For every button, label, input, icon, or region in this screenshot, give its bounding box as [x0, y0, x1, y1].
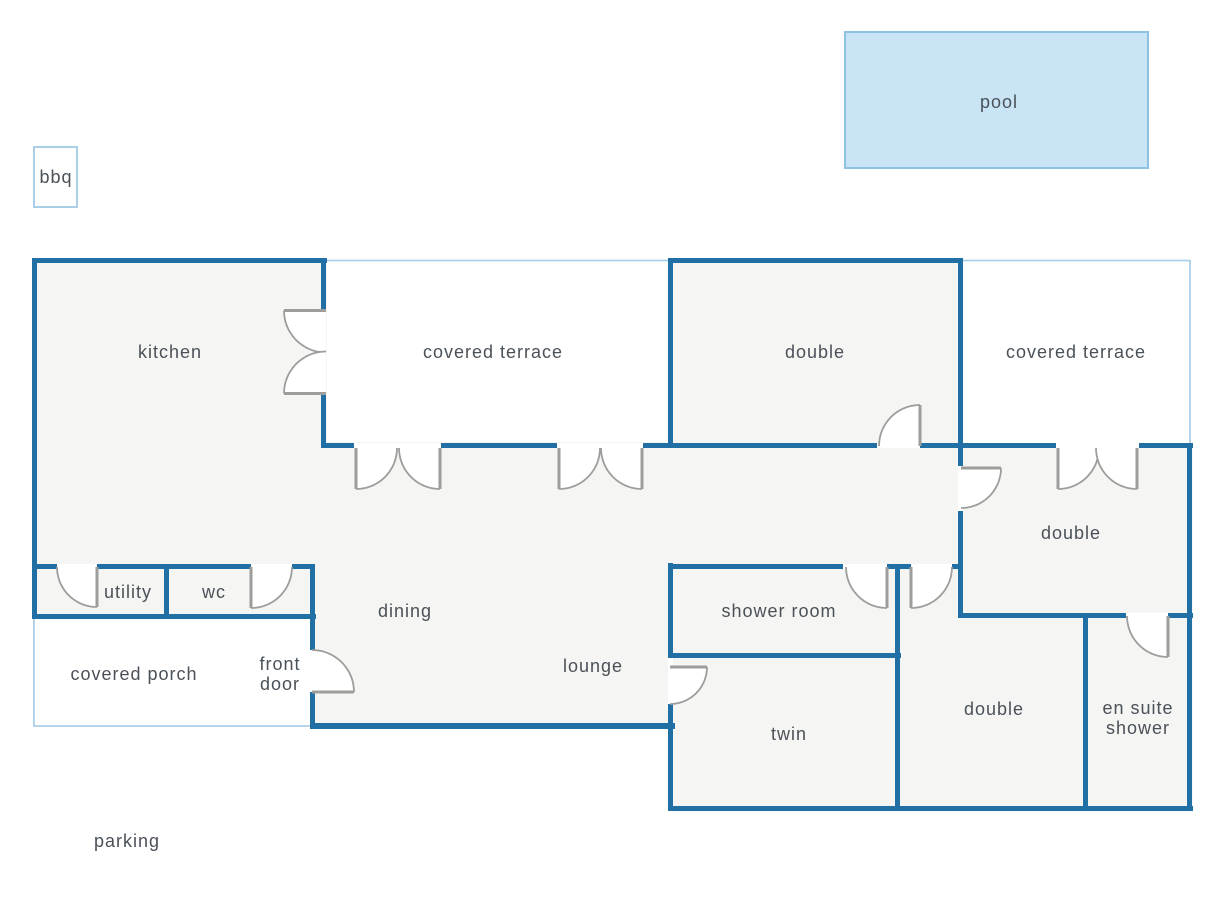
- svg-text:front: front: [259, 654, 300, 674]
- svg-text:covered terrace: covered terrace: [1006, 342, 1146, 362]
- svg-text:kitchen: kitchen: [138, 342, 202, 362]
- svg-text:dining: dining: [378, 601, 432, 621]
- svg-text:wc: wc: [201, 582, 226, 602]
- svg-text:covered porch: covered porch: [70, 664, 197, 684]
- svg-text:covered terrace: covered terrace: [423, 342, 563, 362]
- svg-text:parking: parking: [94, 831, 160, 851]
- svg-text:bbq: bbq: [39, 167, 72, 187]
- svg-text:lounge: lounge: [563, 656, 623, 676]
- svg-text:utility: utility: [104, 582, 152, 602]
- svg-text:shower: shower: [1106, 718, 1170, 738]
- svg-text:door: door: [260, 674, 300, 694]
- svg-text:double: double: [1041, 523, 1101, 543]
- svg-text:en suite: en suite: [1102, 698, 1173, 718]
- svg-text:double: double: [785, 342, 845, 362]
- svg-text:shower room: shower room: [721, 601, 836, 621]
- svg-text:double: double: [964, 699, 1024, 719]
- svg-text:twin: twin: [771, 724, 807, 744]
- svg-text:pool: pool: [980, 92, 1018, 112]
